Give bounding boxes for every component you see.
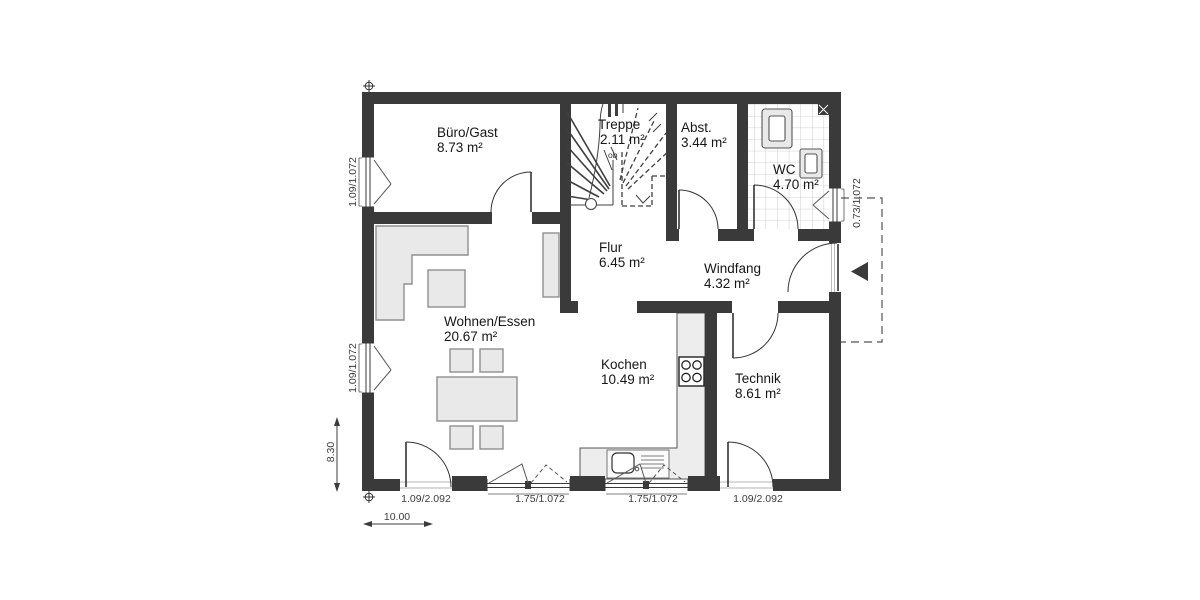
room-area-abst: 3.44 m² xyxy=(681,135,727,150)
room-label-windfang: Windfang xyxy=(704,261,761,276)
room-label-wohnen: Wohnen/Essen xyxy=(444,314,535,329)
room-label-treppe: Treppe xyxy=(598,117,640,132)
room-area-flur: 6.45 m² xyxy=(599,255,645,270)
room-area-wohnen: 20.67 m² xyxy=(444,329,498,344)
room-area-wc: 4.70 m² xyxy=(773,177,819,192)
dim-bottom-door-left: 1.09/2.092 xyxy=(401,493,451,505)
survey-marker-bottom xyxy=(363,491,375,503)
dim-left-window-top: 1.09/1.072 xyxy=(347,157,359,207)
dim-bottom-window-left: 1.75/1.072 xyxy=(515,493,565,505)
kitchen-sink xyxy=(612,453,634,473)
dim-left-height: 8.30 xyxy=(325,442,337,463)
armchair xyxy=(428,270,465,307)
chair xyxy=(450,426,473,449)
room-area-treppe: 2.11 m² xyxy=(600,132,645,147)
survey-marker-top xyxy=(363,80,375,92)
stair-direction-note: ob xyxy=(608,150,618,160)
room-label-flur: Flur xyxy=(599,240,623,255)
dim-left-window-bottom: 1.09/1.072 xyxy=(347,343,359,393)
room-area-windfang: 4.32 m² xyxy=(704,276,750,291)
toilet-bowl-icon xyxy=(769,116,785,141)
chair xyxy=(480,349,503,372)
room-label-technik: Technik xyxy=(735,371,781,386)
room-label-wc: WC xyxy=(773,162,796,177)
dim-right-window: 0.73/1.072 xyxy=(851,178,863,228)
chair xyxy=(450,349,473,372)
room-area-buero: 8.73 m² xyxy=(437,140,483,155)
room-label-buero: Büro/Gast xyxy=(437,125,498,140)
washbasin-bowl-icon xyxy=(805,154,817,173)
dim-width-scale: 10.00 xyxy=(384,511,410,523)
chair xyxy=(480,426,503,449)
room-area-kochen: 10.49 m² xyxy=(601,372,655,387)
room-area-technik: 8.61 m² xyxy=(735,386,781,401)
dim-bottom-window-right: 1.75/1.072 xyxy=(628,493,678,505)
room-label-kochen: Kochen xyxy=(601,357,647,372)
room-label-abst: Abst. xyxy=(681,120,712,135)
dining-table xyxy=(437,377,517,421)
entrance-arrow xyxy=(851,262,868,281)
sideboard xyxy=(543,233,559,297)
hob xyxy=(679,357,704,386)
floor-plan: ob 1.09/1.072 1.09/1.072 8.30 0.73/1.072… xyxy=(0,0,1200,600)
dim-bottom-door-right: 1.09/2.092 xyxy=(733,493,783,505)
